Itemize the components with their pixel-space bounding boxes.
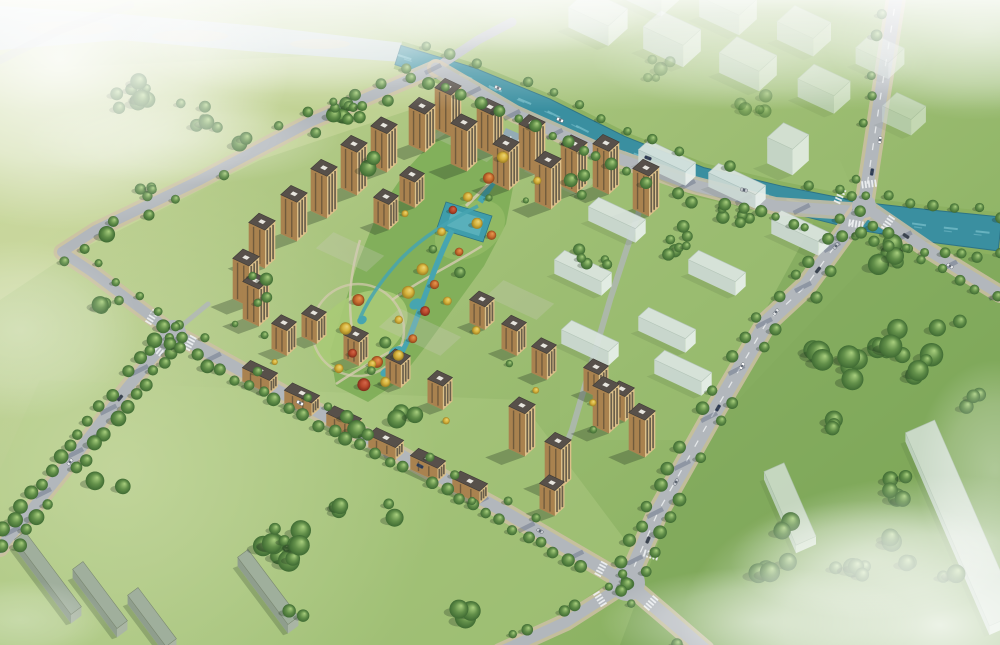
fog-wisp [20,95,340,185]
rendering-canvas [0,0,1000,645]
aerial-site-rendering [0,0,1000,645]
fog-wisp [730,500,1000,620]
